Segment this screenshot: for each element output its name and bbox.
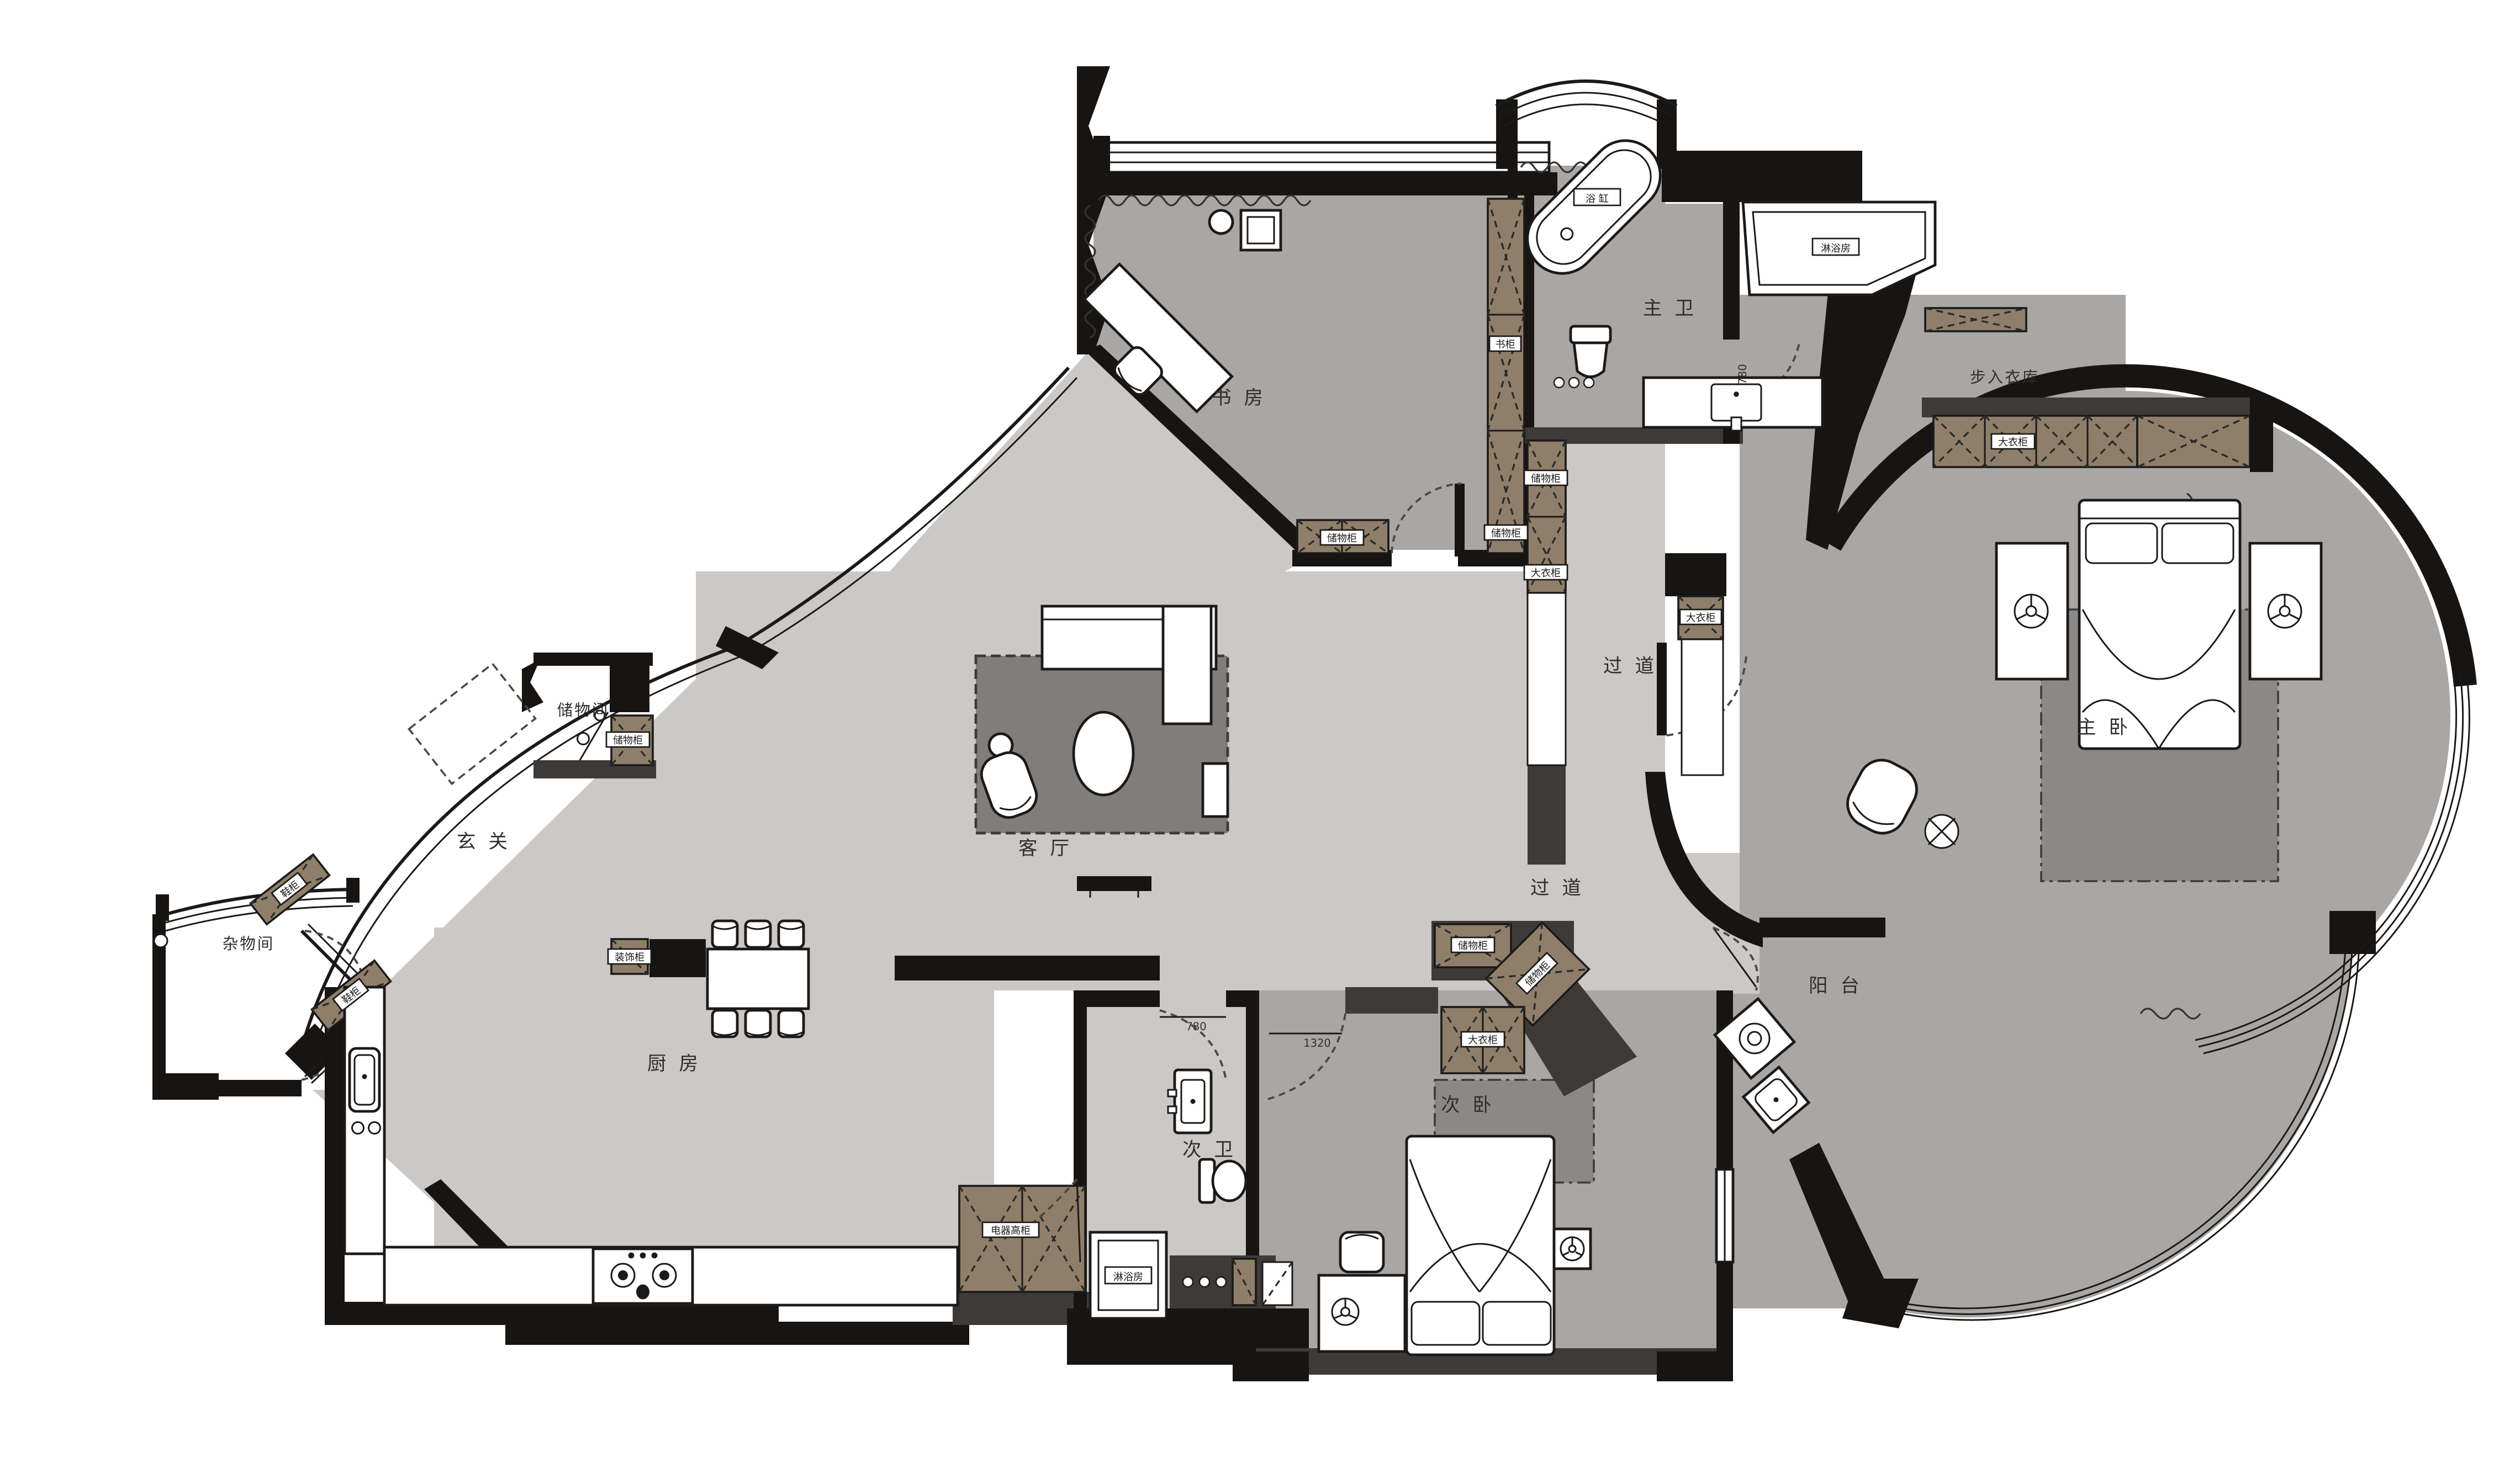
chip-storage-storageroom: 储物柜 [606,732,649,747]
chip-storage-bed2-h: 储物柜 [1451,937,1494,952]
cabinet-bookcase-study [1488,199,1524,553]
chip-storage-corridor: 储物柜 [1524,470,1567,485]
chip-text: 储物柜 [1491,528,1521,539]
master-bath-right-wall [1723,202,1740,340]
chip-deco-hall: 装饰柜 [608,949,651,964]
nightstand-second [1554,1229,1591,1269]
chip-text: 大衣柜 [1998,437,2028,448]
kitchen-left-counter [345,987,384,1254]
master-bedroom-door-leaf [1657,643,1667,735]
chip-text: 电器高柜 [991,1225,1031,1237]
room-label-kitchen: 厨 房 [647,1053,701,1075]
chip-text: 大衣柜 [1531,568,1561,579]
tv-wall-block [610,662,649,712]
utility-bottom-wall [166,1080,302,1096]
second-bed [1407,1136,1554,1355]
chip-wardrobe-entry: 大衣柜 [1680,609,1721,624]
chip-text: 储物柜 [613,735,643,746]
stove [593,1249,693,1303]
living-side-table [1203,764,1228,817]
kitchen-knob [369,1122,381,1134]
chip-wardrobe-corridor: 大衣柜 [1524,565,1567,580]
sink-master [1644,378,1822,431]
bedroom-entry-wall [1665,553,1726,596]
cabinet-storage-corridor [1528,441,1566,765]
study-top-wall [1107,172,1557,195]
room-label-corridor-upper: 过 道 [1603,655,1657,677]
kitchen-island-black [649,939,706,977]
chip-text: 储物柜 [1531,473,1561,485]
second-bedroom-right-wall-b [1716,1262,1733,1375]
kitchen-sink [350,1048,379,1111]
room-label-corridor-lower: 过 道 [1530,877,1584,899]
chip-bookcase-study: 书柜 [1489,336,1521,351]
chip-storage-study-wall: 储物柜 [1484,525,1528,540]
chip-text: 浴 缸 [1586,193,1609,205]
chip-storage-study-bottom: 储物柜 [1320,530,1364,545]
sink-second-bath [1168,1070,1211,1133]
toilet-second-bath [1200,1159,1246,1202]
cabinet-appliance-kitchen [959,1186,1085,1292]
room-label-foyer: 玄 关 [457,831,511,853]
kitchen-passage-floor [994,990,1085,1184]
chip-text: 装饰柜 [615,952,644,963]
kitchen-knob [352,1122,364,1134]
room-label-second-bath: 次 卫 [1182,1139,1237,1161]
foyer-ceiling-dashed [409,664,536,783]
tv-set [1077,876,1151,891]
kitchen-bottom-wall-b [505,1322,969,1345]
lamp-icon [2268,595,2301,628]
chip-wardrobe-bed2: 大衣柜 [1461,1032,1504,1047]
chip-text: 大衣柜 [1686,612,1716,624]
coffee-table [1074,712,1133,795]
chip-text: 储物柜 [1458,940,1488,952]
room-label-study: 书 房 [1212,387,1266,409]
chip-text: 淋浴房 [1113,1271,1143,1283]
second-bedroom-right-wall-a [1716,990,1733,1169]
second-desk [1319,1275,1405,1351]
chip-shower-second: 淋浴房 [1105,1267,1151,1284]
dining-table [707,921,809,1037]
chip-appliance-kitchen: 电器高柜 [982,1222,1039,1237]
chip-wardrobe-closet: 大衣柜 [1991,434,2035,449]
study-top-window [1107,142,1549,172]
room-label-living-room: 客 厅 [1018,838,1072,860]
room-label-utility-room: 杂物间 [223,935,275,953]
study-door-leaf [1455,484,1465,556]
room-label-second-bedroom: 次 卧 [1441,1094,1495,1116]
dim-master-bath-door: 780 [1736,364,1749,384]
dim-second-bath-door: 780 [1186,1020,1206,1033]
dim-second-bedroom-door: 1320 [1303,1037,1331,1050]
cabinet-wardrobe-closet [1922,397,2273,472]
floor-plan-canvas: 书柜 储物柜 储物柜 大衣柜 储物柜 大衣柜 大衣柜 储物柜 鞋柜 鞋柜 装饰柜… [0,0,2515,1484]
chip-text: 大衣柜 [1468,1035,1498,1046]
media-wall-bar [895,956,1160,981]
chip-bathtub: 浴 缸 [1574,189,1620,205]
second-bath-left-wall [1074,990,1087,1358]
room-label-storage-room: 储物间 [557,701,610,719]
chip-text: 储物柜 [1327,533,1357,544]
second-desk-chair [1340,1232,1383,1272]
master-bath-top-wall [1662,151,1862,202]
cabinet-bath2-small [1233,1259,1292,1305]
room-label-master-bedroom: 主 卧 [2077,717,2131,739]
study-ball [1209,210,1233,234]
master-bed [2079,500,2240,749]
cabinet-closet-top [1925,308,2026,331]
kitchen-left-wall [325,987,345,1305]
room-label-balcony: 阳 台 [1809,975,1863,997]
balcony-top-wall [1760,918,1885,937]
chip-shower-master: 淋浴房 [1813,239,1859,255]
lamp-icon [2015,595,2048,628]
chip-text: 书柜 [1496,339,1515,351]
chip-text: 淋浴房 [1821,243,1851,255]
room-label-master-bath: 主 卫 [1643,298,1697,320]
floor-lamp-icon [1925,815,1958,848]
room-label-walkin-closet: 步入衣库 [1970,368,2040,386]
